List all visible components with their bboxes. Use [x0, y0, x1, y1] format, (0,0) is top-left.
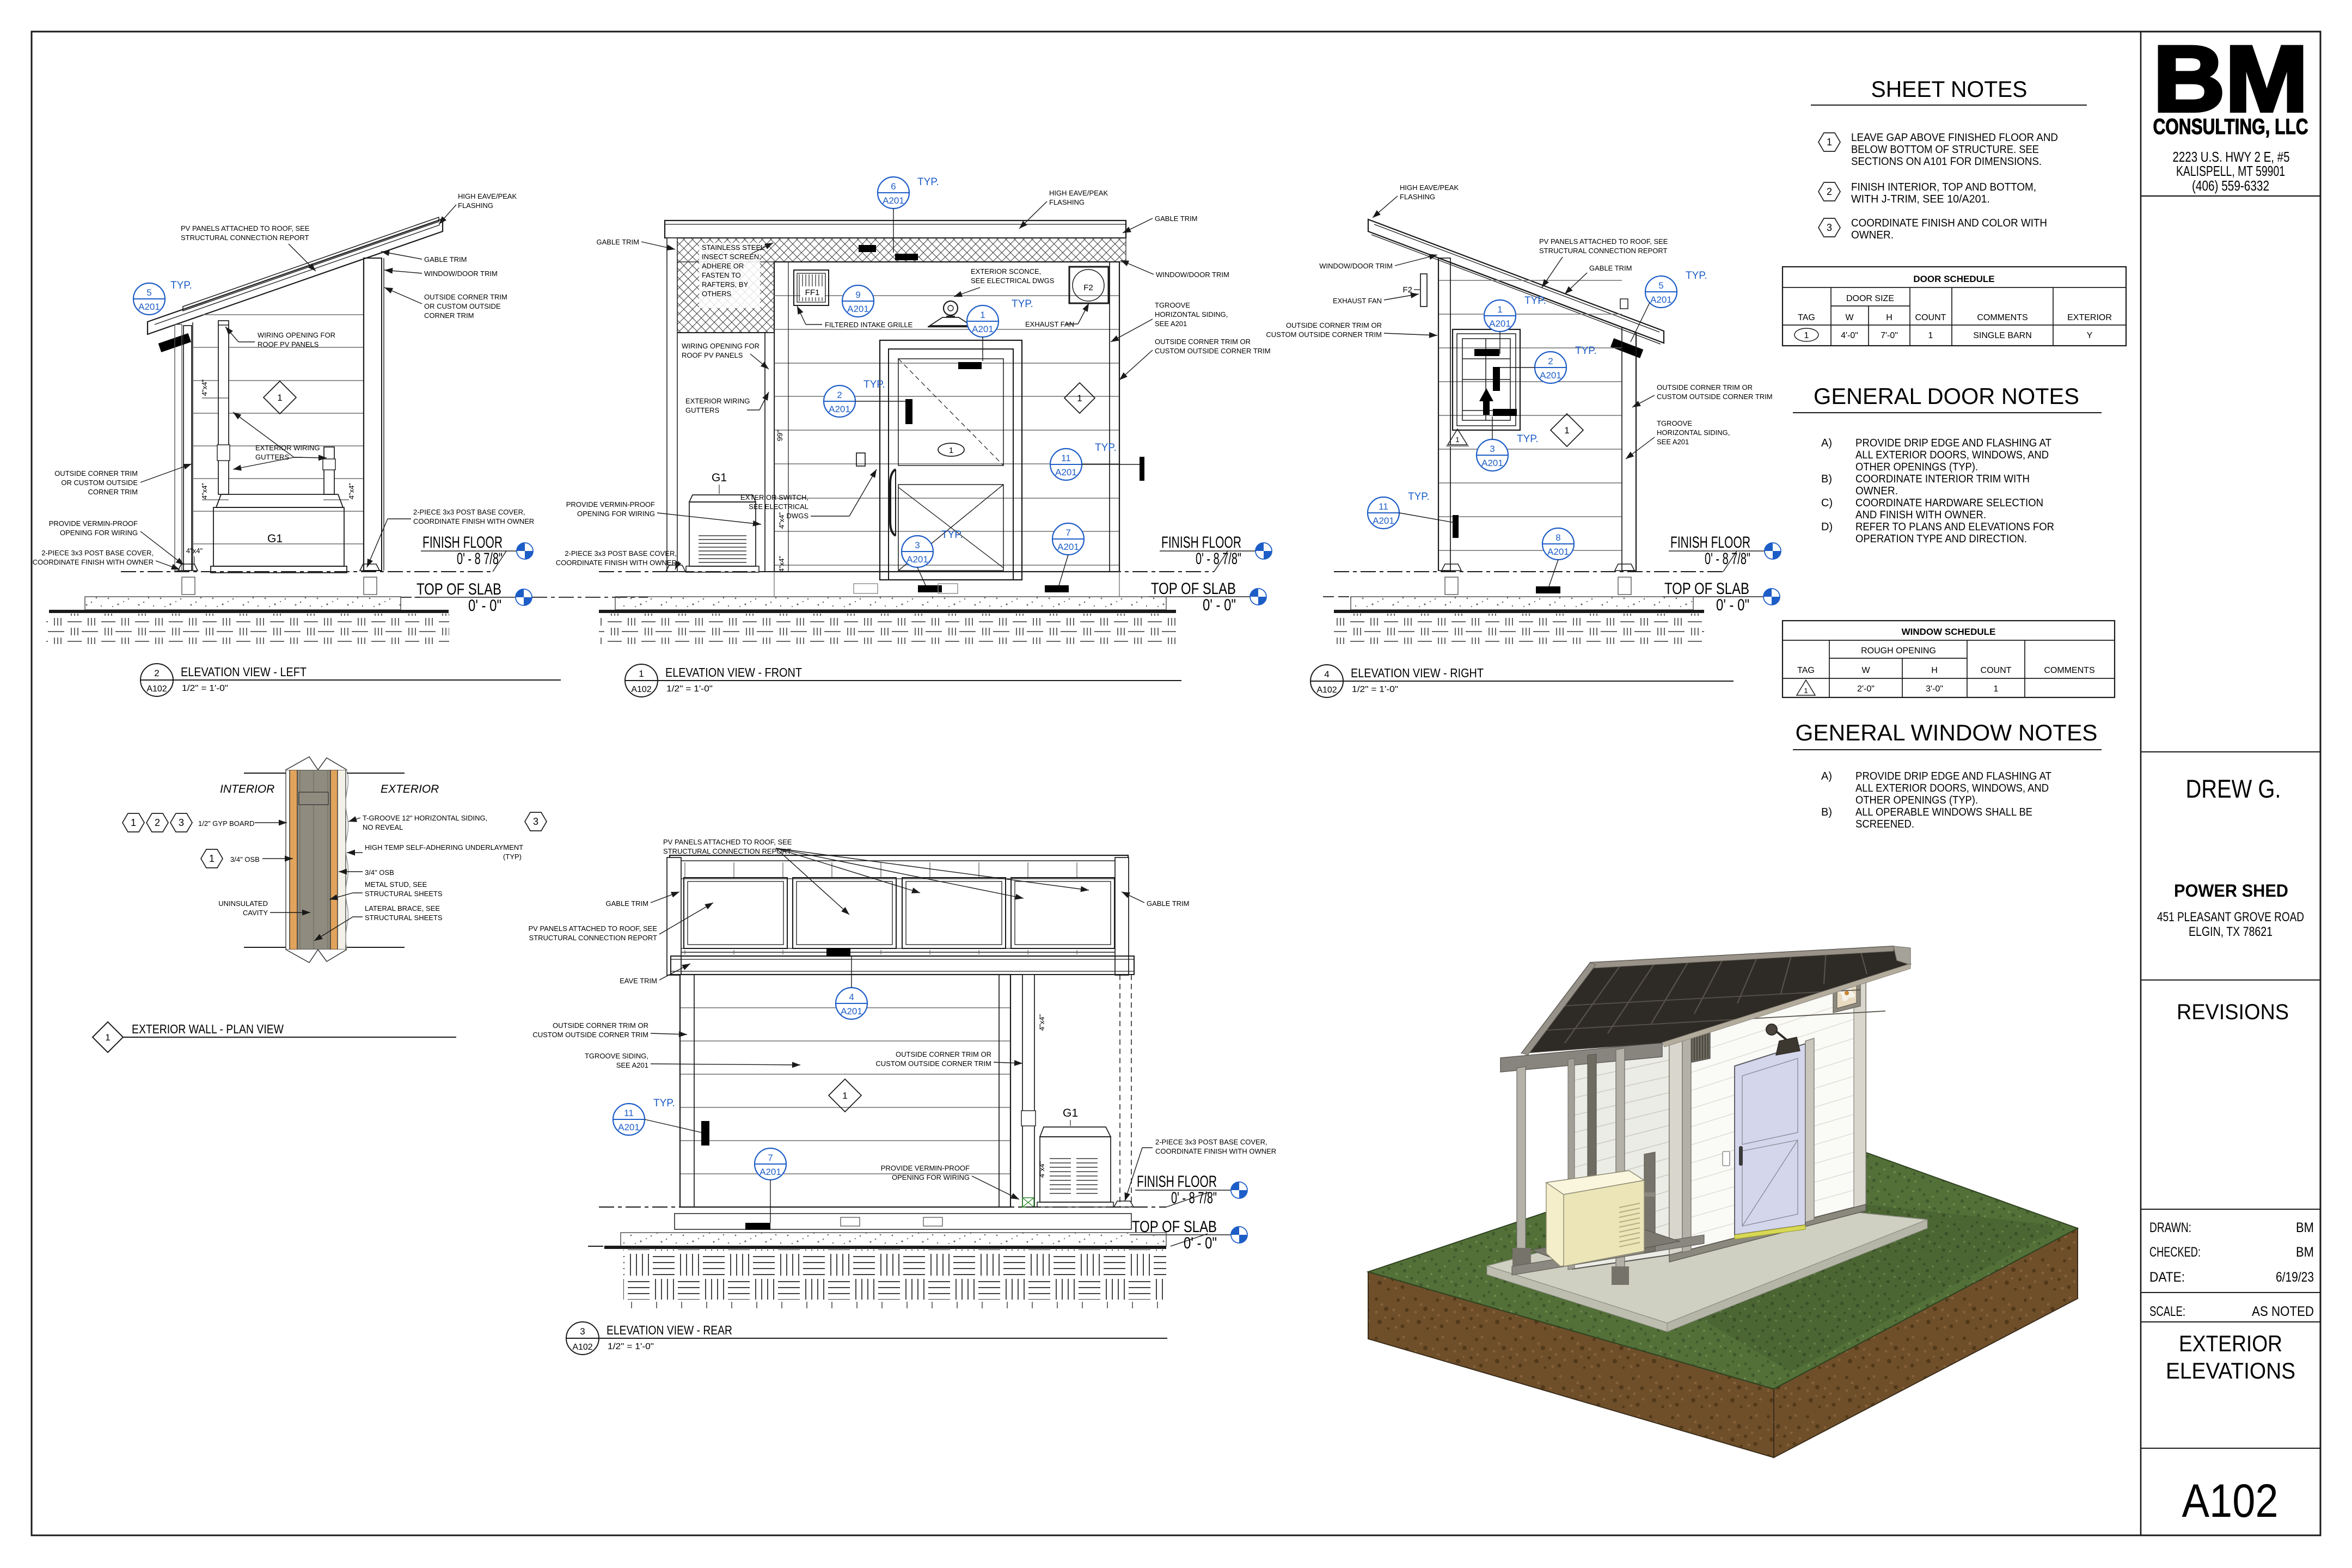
svg-text:2: 2: [1827, 186, 1832, 197]
svg-text:5: 5: [146, 287, 151, 298]
svg-text:A201: A201: [618, 1122, 640, 1132]
svg-text:EXTERIOR: EXTERIOR: [2067, 313, 2112, 322]
svg-text:H: H: [1886, 313, 1892, 322]
svg-text:EXTERIOR: EXTERIOR: [381, 783, 439, 795]
svg-text:0' - 8 7/8": 0' - 8 7/8": [457, 550, 503, 568]
svg-text:B): B): [1821, 806, 1832, 818]
svg-text:SEE ELECTRICAL DWGS: SEE ELECTRICAL DWGS: [971, 277, 1055, 285]
svg-text:A201: A201: [1373, 516, 1394, 526]
svg-text:DOOR SIZE: DOOR SIZE: [1846, 294, 1894, 303]
svg-text:SCREENED.: SCREENED.: [1855, 818, 1914, 830]
svg-text:1/2" = 1'-0": 1/2" = 1'-0": [666, 684, 713, 694]
svg-text:PV PANELS ATTACHED TO ROOF, SE: PV PANELS ATTACHED TO ROOF, SEE: [663, 838, 792, 846]
svg-text:COORDINATE FINISH WITH OWNER: COORDINATE FINISH WITH OWNER: [33, 558, 154, 566]
svg-text:PROVIDE VERMIN-PROOF: PROVIDE VERMIN-PROOF: [49, 519, 138, 528]
svg-text:WINDOW/DOOR TRIM: WINDOW/DOOR TRIM: [1156, 271, 1229, 279]
svg-text:UNINSULATED: UNINSULATED: [218, 899, 268, 908]
svg-text:DWGS: DWGS: [787, 512, 809, 520]
svg-text:COMMENTS: COMMENTS: [2044, 666, 2094, 675]
svg-text:4"x4": 4"x4": [200, 379, 209, 396]
svg-text:TGROOVE: TGROOVE: [1155, 301, 1190, 309]
svg-text:COUNT: COUNT: [1915, 313, 1946, 322]
svg-text:TYP.: TYP.: [1408, 491, 1430, 503]
svg-text:DATE:: DATE:: [2149, 1270, 2185, 1285]
svg-text:CORNER TRIM: CORNER TRIM: [88, 488, 138, 496]
svg-text:CUSTOM OUTSIDE CORNER TRIM: CUSTOM OUTSIDE CORNER TRIM: [1657, 393, 1773, 401]
svg-text:OUTSIDE CORNER TRIM: OUTSIDE CORNER TRIM: [54, 469, 138, 477]
svg-text:FF1: FF1: [805, 288, 820, 297]
svg-text:TYP.: TYP.: [1524, 295, 1546, 307]
svg-text:1: 1: [131, 817, 136, 828]
svg-text:STRUCTURAL SHEETS: STRUCTURAL SHEETS: [365, 890, 443, 898]
svg-text:OPENING FOR WIRING: OPENING FOR WIRING: [892, 1173, 970, 1181]
svg-text:FINISH FLOOR: FINISH FLOOR: [1161, 534, 1241, 552]
svg-text:PROVIDE VERMIN-PROOF: PROVIDE VERMIN-PROOF: [566, 500, 655, 509]
svg-text:BM: BM: [2296, 1220, 2314, 1235]
svg-text:2-PIECE 3x3 POST BASE COVER,: 2-PIECE 3x3 POST BASE COVER,: [41, 549, 154, 557]
svg-text:REVISIONS: REVISIONS: [2177, 1000, 2289, 1024]
svg-text:TYP.: TYP.: [1686, 270, 1707, 281]
svg-text:SEE ELECTRICAL: SEE ELECTRICAL: [749, 503, 808, 511]
svg-text:3'-0": 3'-0": [1926, 684, 1943, 694]
svg-text:1/2" = 1'-0": 1/2" = 1'-0": [608, 1342, 654, 1351]
svg-text:FILTERED INTAKE GRILLE: FILTERED INTAKE GRILLE: [825, 321, 913, 329]
svg-text:EXTERIOR: EXTERIOR: [2179, 1331, 2282, 1356]
svg-text:TAG: TAG: [1797, 666, 1815, 675]
svg-text:ALL OPERABLE WINDOWS SHALL BE: ALL OPERABLE WINDOWS SHALL BE: [1855, 806, 2032, 818]
svg-text:2: 2: [155, 817, 160, 828]
svg-text:COORDINATE FINISH WITH OWNER: COORDINATE FINISH WITH OWNER: [1155, 1147, 1276, 1155]
svg-text:STRUCTURAL CONNECTION REPORT: STRUCTURAL CONNECTION REPORT: [181, 234, 309, 242]
svg-text:1: 1: [980, 310, 985, 320]
svg-text:SCALE:: SCALE:: [2149, 1304, 2185, 1319]
svg-text:METAL STUD, SEE: METAL STUD, SEE: [365, 880, 427, 889]
svg-text:DOOR SCHEDULE: DOOR SCHEDULE: [1913, 274, 1994, 284]
svg-text:1: 1: [639, 669, 644, 679]
svg-text:ROOF PV PANELS: ROOF PV PANELS: [682, 351, 743, 359]
svg-text:WINDOW/DOOR TRIM: WINDOW/DOOR TRIM: [424, 269, 498, 278]
svg-text:GABLE TRIM: GABLE TRIM: [424, 255, 467, 264]
svg-text:TAG: TAG: [1798, 313, 1815, 322]
svg-text:EXHAUST FAN: EXHAUST FAN: [1333, 297, 1382, 305]
svg-text:PV PANELS ATTACHED TO ROOF, SE: PV PANELS ATTACHED TO ROOF, SEE: [1539, 237, 1668, 246]
svg-text:RAFTERS, BY: RAFTERS, BY: [702, 280, 749, 289]
svg-text:0' - 8 7/8": 0' - 8 7/8": [1171, 1189, 1217, 1207]
svg-text:OPENING FOR WIRING: OPENING FOR WIRING: [577, 510, 655, 518]
svg-text:TOP OF SLAB: TOP OF SLAB: [1151, 580, 1236, 598]
svg-text:TYP.: TYP.: [1095, 442, 1117, 454]
svg-text:OTHERS: OTHERS: [702, 290, 732, 298]
svg-text:1: 1: [209, 853, 215, 864]
svg-text:TYP.: TYP.: [1012, 298, 1033, 310]
svg-text:WIRING OPENING FOR: WIRING OPENING FOR: [682, 342, 759, 350]
svg-text:PROVIDE DRIP EDGE AND FLASHING: PROVIDE DRIP EDGE AND FLASHING AT: [1855, 437, 2051, 449]
svg-text:0' - 0": 0' - 0": [1184, 1234, 1217, 1252]
svg-text:2-PIECE 3x3 POST BASE COVER,: 2-PIECE 3x3 POST BASE COVER,: [1155, 1138, 1267, 1146]
svg-text:3/4" OSB: 3/4" OSB: [230, 855, 260, 863]
svg-text:1: 1: [1497, 304, 1502, 315]
svg-text:CAVITY: CAVITY: [243, 909, 268, 917]
svg-text:STRUCTURAL CONNECTION REPORT: STRUCTURAL CONNECTION REPORT: [663, 847, 792, 855]
svg-text:A): A): [1821, 770, 1832, 782]
svg-text:BELOW BOTTOM OF STRUCTURE. SEE: BELOW BOTTOM OF STRUCTURE. SEE: [1851, 144, 2039, 156]
svg-text:STRUCTURAL SHEETS: STRUCTURAL SHEETS: [365, 914, 443, 922]
svg-text:STRUCTURAL CONNECTION REPORT: STRUCTURAL CONNECTION REPORT: [529, 934, 658, 942]
svg-text:COORDINATE INTERIOR TRIM WITH: COORDINATE INTERIOR TRIM WITH: [1855, 473, 2030, 485]
svg-text:3: 3: [1490, 444, 1494, 454]
svg-text:99": 99": [775, 430, 784, 442]
svg-text:LATERAL BRACE, SEE: LATERAL BRACE, SEE: [365, 904, 440, 912]
svg-text:TOP OF SLAB: TOP OF SLAB: [1664, 580, 1749, 598]
svg-text:EXTERIOR WALL - PLAN VIEW: EXTERIOR WALL - PLAN VIEW: [132, 1022, 284, 1036]
svg-text:FINISH FLOOR: FINISH FLOOR: [1670, 534, 1750, 552]
svg-text:9: 9: [855, 290, 860, 300]
svg-text:3: 3: [915, 540, 920, 550]
svg-text:7: 7: [1065, 528, 1070, 538]
svg-text:OTHER OPENINGS (TYP).: OTHER OPENINGS (TYP).: [1855, 794, 1978, 806]
svg-text:TGROOVE SIDING,: TGROOVE SIDING,: [585, 1052, 648, 1060]
svg-text:D): D): [1821, 521, 1833, 533]
svg-text:CONSULTING, LLC: CONSULTING, LLC: [2153, 115, 2308, 139]
svg-text:BM: BM: [2296, 1245, 2314, 1260]
svg-text:PV PANELS ATTACHED TO ROOF, SE: PV PANELS ATTACHED TO ROOF, SEE: [529, 924, 658, 933]
svg-text:SECTIONS ON A101 FOR DIMENSION: SECTIONS ON A101 FOR DIMENSIONS.: [1851, 156, 2042, 168]
svg-text:CUSTOM OUTSIDE CORNER TRIM: CUSTOM OUTSIDE CORNER TRIM: [875, 1059, 991, 1068]
svg-text:NO REVEAL: NO REVEAL: [363, 823, 403, 831]
svg-text:A102: A102: [146, 684, 167, 694]
svg-text:A201: A201: [883, 195, 904, 206]
svg-text:GABLE TRIM: GABLE TRIM: [1147, 899, 1190, 908]
svg-text:4"x4": 4"x4": [186, 547, 203, 555]
svg-text:SEE A201: SEE A201: [1657, 438, 1689, 446]
svg-text:0' - 8 7/8": 0' - 8 7/8": [1705, 550, 1750, 568]
svg-text:A201: A201: [1547, 547, 1569, 557]
svg-text:COMMENTS: COMMENTS: [1977, 313, 2028, 322]
svg-text:11: 11: [624, 1108, 634, 1118]
svg-text:OR CUSTOM OUTSIDE: OR CUSTOM OUTSIDE: [61, 479, 138, 487]
svg-text:TOP OF SLAB: TOP OF SLAB: [416, 580, 501, 598]
svg-text:4: 4: [849, 992, 854, 1002]
svg-text:TYP.: TYP.: [653, 1098, 675, 1109]
svg-text:ROUGH OPENING: ROUGH OPENING: [1861, 646, 1936, 656]
svg-text:OUTSIDE CORNER TRIM OR: OUTSIDE CORNER TRIM OR: [553, 1021, 648, 1030]
svg-text:CUSTOM OUTSIDE CORNER TRIM: CUSTOM OUTSIDE CORNER TRIM: [532, 1031, 648, 1039]
svg-text:3/4" OSB: 3/4" OSB: [365, 868, 394, 877]
svg-text:TGROOVE: TGROOVE: [1657, 419, 1692, 427]
svg-text:A102: A102: [1316, 685, 1337, 695]
svg-text:6: 6: [891, 181, 896, 192]
svg-text:COORDINATE FINISH WITH OWNER: COORDINATE FINISH WITH OWNER: [556, 559, 677, 567]
svg-text:POWER SHED: POWER SHED: [2174, 881, 2288, 901]
svg-text:CORNER TRIM: CORNER TRIM: [424, 311, 474, 320]
svg-text:C): C): [1821, 497, 1833, 509]
svg-text:T-GROOVE 12" HORIZONTAL SIDING: T-GROOVE 12" HORIZONTAL SIDING,: [363, 814, 487, 822]
svg-text:OUTSIDE CORNER TRIM OR: OUTSIDE CORNER TRIM OR: [1657, 383, 1753, 391]
svg-text:4: 4: [1324, 669, 1329, 679]
svg-text:1/2" = 1'-0": 1/2" = 1'-0": [182, 684, 228, 693]
svg-text:SEE A201: SEE A201: [616, 1061, 648, 1069]
svg-text:A201: A201: [1540, 370, 1561, 381]
svg-text:A201: A201: [841, 1006, 862, 1016]
svg-text:3: 3: [179, 817, 184, 828]
svg-text:8: 8: [1555, 532, 1560, 543]
svg-text:ALL EXTERIOR DOORS, WINDOWS, A: ALL EXTERIOR DOORS, WINDOWS, AND: [1855, 782, 2049, 794]
svg-text:GUTTERS: GUTTERS: [255, 453, 289, 461]
svg-text:CHECKED:: CHECKED:: [2149, 1245, 2201, 1260]
svg-text:1: 1: [1827, 137, 1832, 148]
svg-text:4'-0": 4'-0": [1841, 331, 1858, 340]
svg-text:0' - 0": 0' - 0": [1203, 596, 1236, 614]
svg-text:1: 1: [1928, 331, 1933, 340]
svg-text:WINDOW SCHEDULE: WINDOW SCHEDULE: [1902, 627, 1996, 637]
svg-text:STRUCTURAL CONNECTION REPORT: STRUCTURAL CONNECTION REPORT: [1539, 247, 1668, 255]
svg-text:1: 1: [1994, 684, 1999, 694]
svg-text:DREW G.: DREW G.: [2186, 774, 2281, 803]
svg-text:1: 1: [105, 1032, 110, 1043]
svg-text:4"x4": 4"x4": [1038, 1014, 1046, 1031]
svg-text:GENERAL DOOR NOTES: GENERAL DOOR NOTES: [1814, 383, 2079, 409]
svg-text:3: 3: [1827, 222, 1832, 233]
svg-text:REFER TO PLANS AND ELEVATIONS: REFER TO PLANS AND ELEVATIONS FOR: [1855, 521, 2054, 533]
svg-text:A201: A201: [847, 304, 869, 314]
svg-text:6/19/23: 6/19/23: [2276, 1270, 2314, 1285]
svg-text:FLASHING: FLASHING: [1049, 198, 1085, 206]
svg-text:3: 3: [580, 1326, 585, 1337]
svg-text:A102: A102: [631, 685, 651, 694]
svg-text:2: 2: [1548, 356, 1553, 366]
svg-text:1: 1: [1564, 425, 1569, 436]
svg-text:FINISH INTERIOR, TOP AND BOTTO: FINISH INTERIOR, TOP AND BOTTOM,: [1851, 181, 2036, 193]
svg-text:TYP.: TYP.: [863, 379, 885, 390]
svg-text:ELEVATION VIEW - LEFT: ELEVATION VIEW - LEFT: [181, 665, 307, 679]
svg-text:1/2" GYP BOARD: 1/2" GYP BOARD: [198, 819, 254, 828]
svg-text:STAINLESS STEEL: STAINLESS STEEL: [702, 243, 764, 252]
svg-text:A201: A201: [972, 324, 994, 334]
svg-text:GABLE TRIM: GABLE TRIM: [596, 238, 639, 246]
svg-text:G1: G1: [1063, 1107, 1078, 1119]
svg-text:A201: A201: [906, 554, 928, 565]
svg-text:2-PIECE 3x3 POST BASE COVER,: 2-PIECE 3x3 POST BASE COVER,: [413, 508, 525, 516]
svg-text:OUTSIDE CORNER TRIM OR: OUTSIDE CORNER TRIM OR: [1155, 338, 1251, 346]
svg-text:WINDOW/DOOR TRIM: WINDOW/DOOR TRIM: [1319, 262, 1393, 270]
svg-text:HIGH EAVE/PEAK: HIGH EAVE/PEAK: [1400, 183, 1459, 192]
svg-text:INTERIOR: INTERIOR: [220, 783, 274, 795]
svg-text:EXTERIOR WIRING: EXTERIOR WIRING: [255, 444, 320, 452]
svg-text:4"x4": 4"x4": [347, 483, 356, 500]
svg-text:(406) 559-6332: (406) 559-6332: [2192, 177, 2269, 194]
svg-text:A201: A201: [759, 1167, 781, 1177]
svg-text:COORDINATE FINISH WITH OWNER: COORDINATE FINISH WITH OWNER: [413, 517, 534, 525]
svg-text:4"x4": 4"x4": [777, 556, 786, 573]
svg-text:1: 1: [1804, 331, 1809, 340]
svg-text:1/2" = 1'-0": 1/2" = 1'-0": [1352, 685, 1398, 694]
svg-text:PV PANELS ATTACHED TO ROOF, SE: PV PANELS ATTACHED TO ROOF, SEE: [181, 224, 310, 232]
svg-text:1: 1: [949, 446, 953, 455]
svg-text:W: W: [1845, 313, 1854, 322]
svg-text:1: 1: [1455, 436, 1459, 444]
svg-text:5: 5: [1658, 280, 1663, 291]
svg-text:PROVIDE DRIP EDGE AND FLASHING: PROVIDE DRIP EDGE AND FLASHING AT: [1855, 770, 2051, 782]
svg-text:A201: A201: [1481, 458, 1503, 468]
svg-text:2-PIECE 3x3 POST BASE COVER,: 2-PIECE 3x3 POST BASE COVER,: [565, 549, 677, 558]
svg-text:1: 1: [1077, 393, 1082, 403]
svg-text:H: H: [1931, 666, 1938, 675]
svg-text:A201: A201: [138, 302, 160, 312]
svg-text:FASTEN TO: FASTEN TO: [702, 271, 741, 279]
svg-text:EXTERIOR SCONCE,: EXTERIOR SCONCE,: [971, 267, 1041, 275]
svg-text:FINISH FLOOR: FINISH FLOOR: [1137, 1173, 1217, 1191]
svg-text:COORDINATE HARDWARE SELECTION: COORDINATE HARDWARE SELECTION: [1855, 497, 2043, 509]
svg-text:GABLE TRIM: GABLE TRIM: [1589, 264, 1632, 272]
svg-text:11: 11: [1061, 453, 1071, 463]
svg-text:GENERAL WINDOW NOTES: GENERAL WINDOW NOTES: [1796, 720, 2098, 745]
svg-text:EXTERIOR WIRING: EXTERIOR WIRING: [685, 397, 750, 405]
svg-text:SEE A201: SEE A201: [1155, 320, 1187, 328]
svg-text:HIGH TEMP SELF-ADHERING UNDERL: HIGH TEMP SELF-ADHERING UNDERLAYMENT: [365, 843, 523, 852]
svg-text:GABLE TRIM: GABLE TRIM: [1155, 215, 1198, 223]
svg-text:TYP.: TYP.: [917, 176, 939, 188]
svg-text:CUSTOM OUTSIDE CORNER TRIM: CUSTOM OUTSIDE CORNER TRIM: [1155, 347, 1271, 355]
svg-text:EAVE TRIM: EAVE TRIM: [620, 977, 657, 985]
svg-text:A): A): [1821, 437, 1832, 449]
svg-text:LEAVE GAP ABOVE FINISHED FLOOR: LEAVE GAP ABOVE FINISHED FLOOR AND: [1851, 132, 2058, 144]
svg-text:COUNT: COUNT: [1981, 666, 2012, 675]
svg-text:COORDINATE FINISH AND COLOR WI: COORDINATE FINISH AND COLOR WITH: [1851, 217, 2047, 229]
svg-text:ELGIN, TX 78621: ELGIN, TX 78621: [2189, 924, 2273, 939]
svg-text:A201: A201: [1650, 295, 1672, 305]
svg-text:OWNER.: OWNER.: [1851, 229, 1894, 241]
svg-text:G1: G1: [267, 532, 283, 545]
svg-text:3: 3: [533, 816, 538, 827]
svg-text:SHEET NOTES: SHEET NOTES: [1871, 76, 2028, 102]
svg-text:ALL EXTERIOR DOORS, WINDOWS, A: ALL EXTERIOR DOORS, WINDOWS, AND: [1855, 449, 2049, 461]
svg-text:INSECT SCREEN,: INSECT SCREEN,: [702, 253, 761, 261]
svg-text:FLASHING: FLASHING: [1400, 193, 1435, 201]
svg-text:AS NOTED: AS NOTED: [2252, 1304, 2314, 1319]
svg-text:ELEVATION VIEW - RIGHT: ELEVATION VIEW - RIGHT: [1351, 666, 1484, 680]
svg-text:FLASHING: FLASHING: [458, 201, 493, 210]
svg-text:A201: A201: [1489, 318, 1511, 329]
svg-text:SINGLE BARN: SINGLE BARN: [1973, 331, 2032, 340]
svg-text:W: W: [1861, 666, 1870, 675]
svg-text:A201: A201: [829, 404, 850, 414]
svg-text:HIGH EAVE/PEAK: HIGH EAVE/PEAK: [458, 192, 517, 200]
svg-text:A102: A102: [2182, 1475, 2278, 1527]
svg-text:F2: F2: [1083, 283, 1093, 292]
svg-text:TYP.: TYP.: [941, 529, 963, 541]
svg-text:B): B): [1821, 473, 1832, 485]
svg-text:0' - 0": 0' - 0": [1716, 596, 1749, 614]
svg-text:GUTTERS: GUTTERS: [685, 406, 719, 414]
svg-text:GABLE TRIM: GABLE TRIM: [605, 899, 648, 908]
svg-text:OWNER.: OWNER.: [1855, 485, 1898, 497]
svg-text:4"x4": 4"x4": [777, 512, 786, 529]
svg-text:KALISPELL, MT 59901: KALISPELL, MT 59901: [2176, 163, 2285, 179]
svg-text:(TYP): (TYP): [503, 853, 522, 861]
svg-text:EXTERIOR SWITCH,: EXTERIOR SWITCH,: [740, 493, 808, 501]
svg-text:OPERATION TYPE AND DIRECTION.: OPERATION TYPE AND DIRECTION.: [1855, 533, 2027, 545]
svg-text:AND FINISH WITH OWNER.: AND FINISH WITH OWNER.: [1855, 509, 1986, 521]
svg-text:1: 1: [842, 1091, 847, 1101]
svg-text:G1: G1: [712, 471, 727, 484]
svg-text:OTHER OPENINGS (TYP).: OTHER OPENINGS (TYP).: [1855, 461, 1978, 473]
svg-text:451 PLEASANT GROVE ROAD: 451 PLEASANT GROVE ROAD: [2157, 910, 2304, 924]
svg-text:2'-0": 2'-0": [1857, 684, 1875, 694]
svg-text:HORIZONTAL SIDING,: HORIZONTAL SIDING,: [1155, 310, 1228, 318]
svg-text:PROVIDE VERMIN-PROOF: PROVIDE VERMIN-PROOF: [881, 1164, 970, 1172]
svg-text:7: 7: [768, 1153, 773, 1163]
svg-text:HIGH EAVE/PEAK: HIGH EAVE/PEAK: [1049, 189, 1108, 197]
svg-text:TYP.: TYP.: [1517, 433, 1539, 445]
svg-text:2: 2: [154, 668, 159, 678]
svg-text:DRAWN:: DRAWN:: [2149, 1220, 2191, 1235]
svg-text:A201: A201: [1057, 542, 1079, 552]
svg-text:TYP.: TYP.: [1575, 345, 1597, 357]
svg-text:WIRING OPENING FOR: WIRING OPENING FOR: [258, 331, 335, 339]
svg-text:CUSTOM OUTSIDE CORNER TRIM: CUSTOM OUTSIDE CORNER TRIM: [1266, 330, 1382, 339]
svg-text:11: 11: [1379, 501, 1388, 512]
svg-text:7'-0": 7'-0": [1881, 331, 1898, 340]
svg-text:A102: A102: [572, 1343, 592, 1352]
svg-text:HORIZONTAL SIDING,: HORIZONTAL SIDING,: [1657, 428, 1730, 437]
svg-text:ELEVATION VIEW - FRONT: ELEVATION VIEW - FRONT: [665, 665, 802, 679]
svg-text:0' - 0": 0' - 0": [468, 597, 501, 615]
svg-text:FINISH FLOOR: FINISH FLOOR: [422, 534, 503, 552]
svg-text:ADHERE OR: ADHERE OR: [702, 262, 744, 270]
svg-text:OUTSIDE CORNER TRIM OR: OUTSIDE CORNER TRIM OR: [1286, 321, 1382, 329]
svg-text:ELEVATION VIEW - REAR: ELEVATION VIEW - REAR: [607, 1323, 732, 1337]
svg-text:1: 1: [277, 393, 282, 403]
svg-text:A201: A201: [1055, 467, 1077, 477]
svg-text:ELEVATIONS: ELEVATIONS: [2166, 1358, 2295, 1383]
svg-text:OPENING FOR WIRING: OPENING FOR WIRING: [60, 529, 138, 537]
svg-text:0' - 8 7/8": 0' - 8 7/8": [1196, 550, 1241, 568]
svg-text:4"x4": 4"x4": [200, 483, 209, 500]
svg-text:1: 1: [1804, 687, 1808, 695]
svg-text:OUTSIDE CORNER TRIM OR: OUTSIDE CORNER TRIM OR: [896, 1050, 991, 1058]
svg-text:OR CUSTOM OUTSIDE: OR CUSTOM OUTSIDE: [424, 302, 501, 310]
svg-text:WITH J-TRIM, SEE 10/A201.: WITH J-TRIM, SEE 10/A201.: [1851, 193, 1990, 205]
svg-text:4"x4": 4"x4": [1038, 1161, 1046, 1178]
svg-text:Y: Y: [2087, 331, 2093, 340]
svg-text:OUTSIDE CORNER TRIM: OUTSIDE CORNER TRIM: [424, 293, 507, 301]
svg-text:TYP.: TYP.: [170, 280, 192, 291]
svg-text:2: 2: [837, 390, 842, 400]
svg-text:ROOF PV PANELS: ROOF PV PANELS: [258, 340, 319, 348]
